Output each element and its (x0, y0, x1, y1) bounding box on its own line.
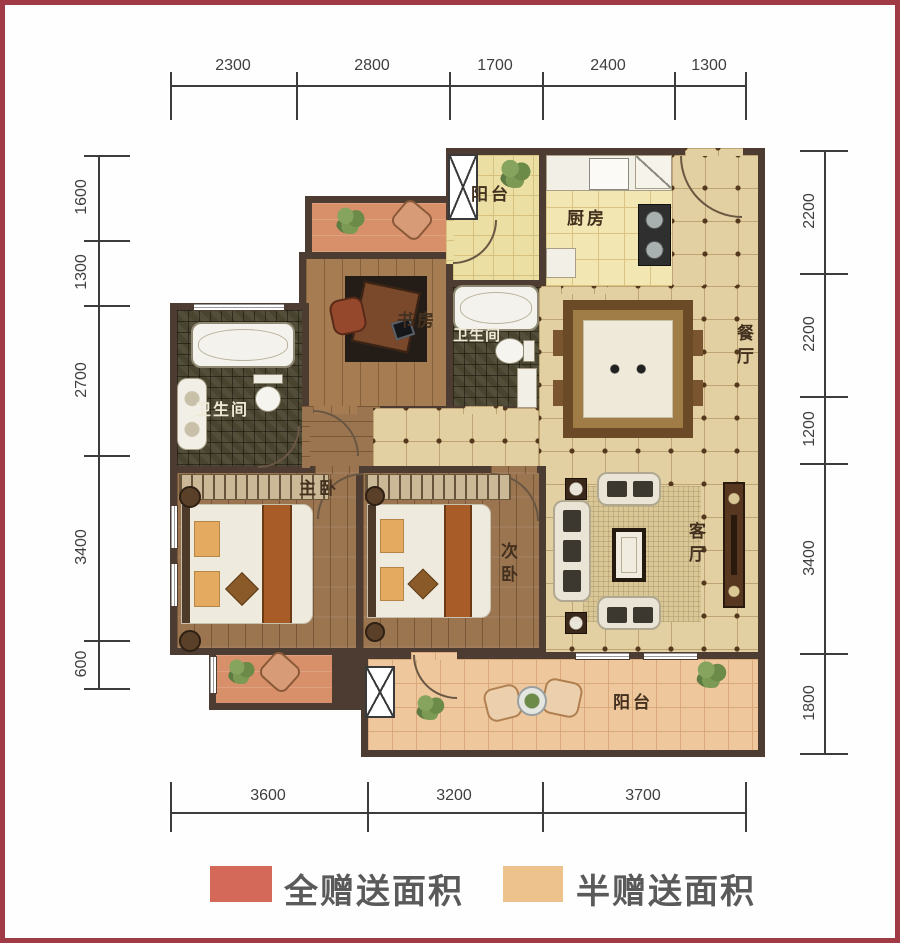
door-opening (463, 406, 503, 414)
room-label-dining: 餐厅 (731, 324, 756, 370)
kitchen-sink (589, 158, 629, 190)
dimension-label: 1800 (801, 685, 819, 721)
balcony-table (517, 686, 547, 716)
toilet-tank (523, 340, 535, 362)
room-label-bath-middle: 卫生间 (453, 324, 501, 345)
window (170, 505, 178, 549)
dimension-label: 2300 (215, 57, 251, 75)
door-opening (561, 286, 607, 294)
room-label-second-bedroom: 次卧 (495, 542, 520, 588)
plant (695, 660, 727, 688)
dimension-label: 2200 (801, 193, 819, 229)
bed-master (181, 504, 313, 624)
door-opening (315, 466, 359, 474)
window (193, 303, 285, 311)
plant (227, 658, 255, 684)
window (575, 652, 630, 660)
room-label-kitchen: 厨房 (567, 204, 607, 229)
armchair (597, 472, 661, 506)
nightstand (179, 630, 201, 652)
room-label-study: 书房 (397, 306, 437, 331)
kitchen-corner-cabinet (635, 155, 672, 189)
side-table (565, 612, 587, 634)
bathtub (191, 322, 295, 368)
dimension-label: 3400 (73, 529, 91, 565)
pillow (194, 571, 220, 607)
toilet (255, 386, 281, 412)
room-label-balcony-top: 阳台 (471, 180, 511, 205)
dimension-label: 2400 (590, 57, 626, 75)
dimension-label: 1600 (73, 179, 91, 215)
legend-label-half-gift: 半赠送面积 (576, 864, 756, 913)
dimension-label: 3200 (436, 787, 472, 805)
bed-runner (262, 505, 292, 623)
bed-second (367, 504, 491, 618)
dining-chair (553, 330, 563, 356)
coffee-table (612, 528, 646, 582)
throw-pillow (407, 568, 438, 599)
sofa (553, 500, 591, 602)
window (170, 563, 178, 607)
dimension-label: 1300 (73, 254, 91, 290)
plant (415, 694, 445, 720)
pillow (380, 567, 404, 601)
stove (638, 204, 671, 266)
side-table (565, 478, 587, 500)
plant (335, 206, 365, 234)
legend-swatch-full-gift (210, 866, 272, 902)
dimension-label: 2700 (73, 362, 91, 398)
dimension-label: 1700 (477, 57, 513, 75)
wardrobe (365, 474, 511, 500)
pillow (194, 521, 220, 557)
dining-chair (693, 380, 703, 406)
dimension-label: 1300 (691, 57, 727, 75)
throw-pillow (225, 572, 259, 606)
room-label-master: 主卧 (299, 474, 339, 499)
pillow (380, 519, 404, 553)
armchair (597, 596, 661, 630)
dimension-label: 3600 (250, 787, 286, 805)
dining-table (563, 300, 693, 438)
window (643, 652, 698, 660)
room-label-living: 客厅 (683, 522, 708, 568)
nightstand (365, 486, 385, 506)
dimension-label: 2200 (801, 316, 819, 352)
kitchen-mat (546, 248, 576, 278)
dimension-label: 2800 (354, 57, 390, 75)
dimension-label: 3400 (801, 540, 819, 576)
shower-column (517, 368, 537, 408)
door-opening (302, 426, 310, 468)
tv-cabinet (723, 482, 745, 608)
floorplan: 阳台 厨房 书房 卫生间 卫生间 餐厅 主卧 次卧 客厅 阳台 (165, 140, 765, 765)
shaft-hatch (365, 666, 395, 718)
wall-bay-step (339, 648, 363, 710)
nightstand (365, 622, 385, 642)
bed-runner (444, 505, 472, 617)
nightstand (179, 486, 201, 508)
toilet-tank (253, 374, 283, 384)
dimension-label: 3700 (625, 787, 661, 805)
door-opening (685, 148, 743, 156)
window (209, 656, 217, 694)
room-label-bath-left: 卫生间 (195, 396, 249, 420)
wall-right (758, 148, 765, 658)
dining-chair (693, 330, 703, 356)
room-label-balcony-bottom: 阳台 (613, 688, 653, 713)
hallway-tile-floor (373, 408, 545, 468)
dining-chair (553, 380, 563, 406)
dimension-label: 1200 (801, 411, 819, 447)
dimension-label: 600 (73, 651, 91, 678)
floorplan-page: { "plan": { "rooms": { "balcony_top": {"… (0, 0, 900, 943)
legend-label-full-gift: 全赠送面积 (284, 864, 464, 913)
legend-swatch-half-gift (503, 866, 563, 902)
